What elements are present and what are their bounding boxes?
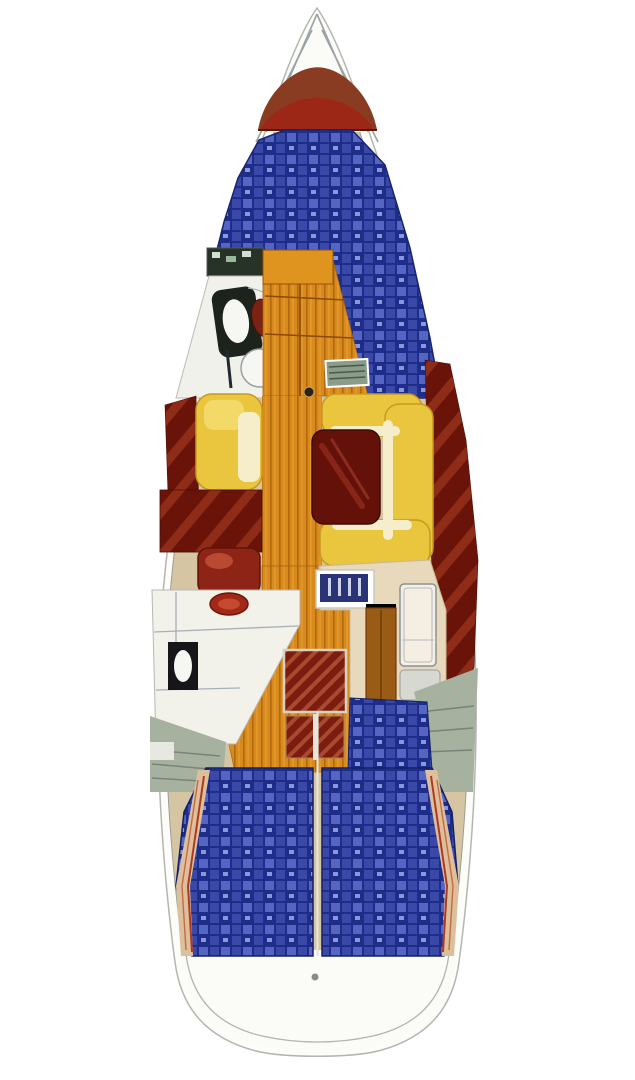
galley-stove-highlight bbox=[205, 553, 233, 569]
port-cabinet bbox=[160, 490, 262, 552]
stern-fitting-dot bbox=[312, 974, 319, 981]
forward-shelf-unit bbox=[325, 359, 368, 387]
starboard-berth-extension bbox=[348, 698, 432, 770]
galley-sink-inner bbox=[218, 599, 240, 610]
mast-post bbox=[304, 387, 314, 397]
chart-table bbox=[400, 584, 436, 666]
companionway-steps-upper bbox=[284, 650, 346, 712]
boat-layout-image bbox=[0, 0, 635, 1080]
boat-layout-svg bbox=[0, 0, 635, 1080]
engine-port-white-bit bbox=[150, 742, 174, 760]
galley-stove-gimbal bbox=[198, 548, 260, 594]
port-settee-cream-edge bbox=[238, 412, 260, 482]
galley-range-burner bbox=[174, 650, 192, 682]
forward-cabinet-top bbox=[263, 250, 333, 284]
